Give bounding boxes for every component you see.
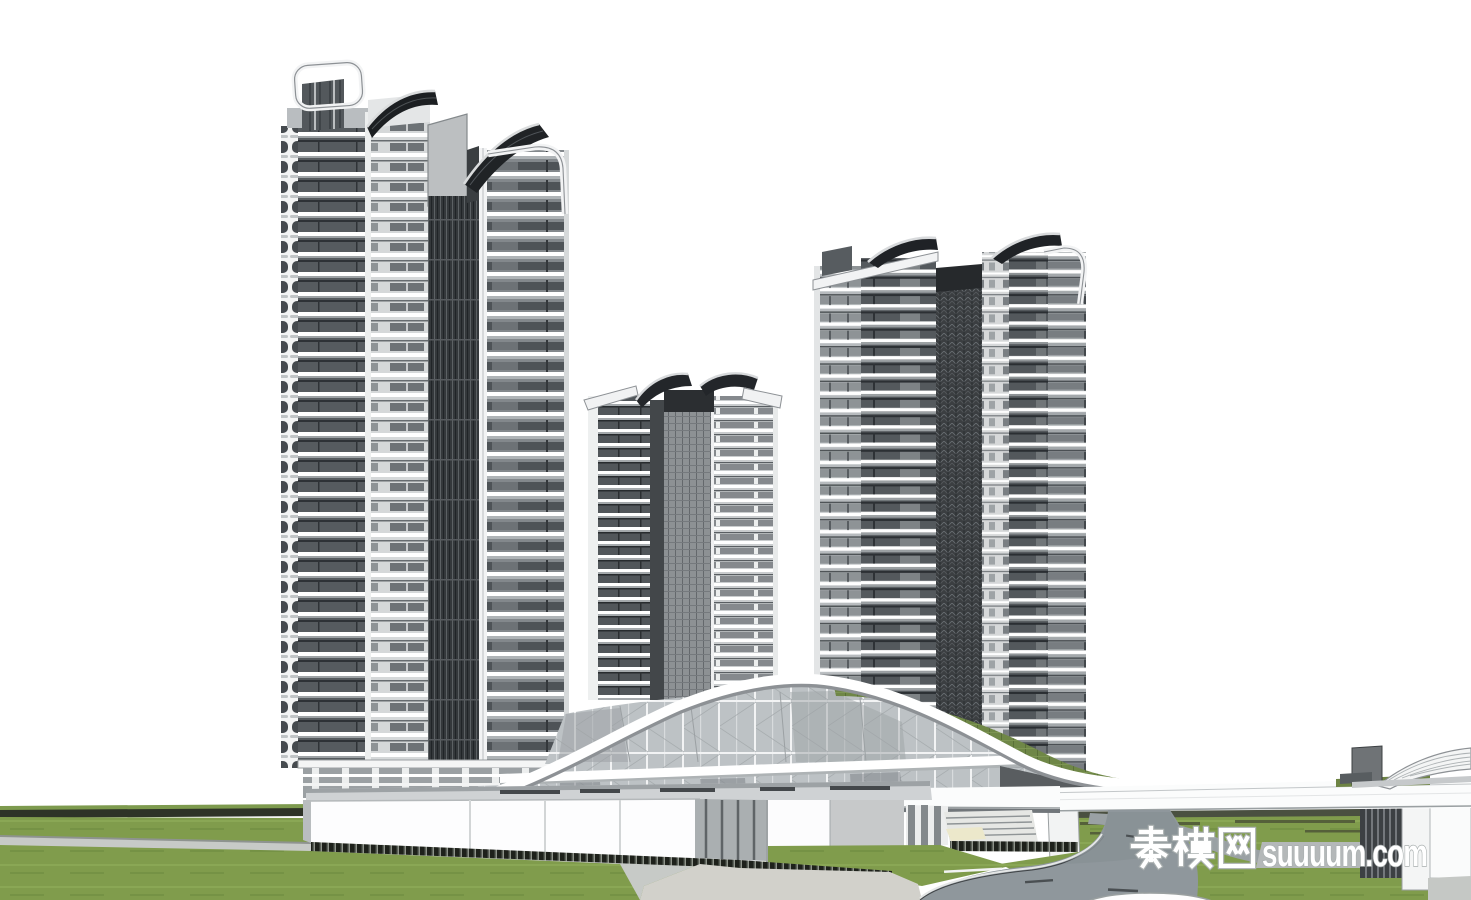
svg-text:suuuum.com: suuuum.com: [1262, 833, 1427, 875]
